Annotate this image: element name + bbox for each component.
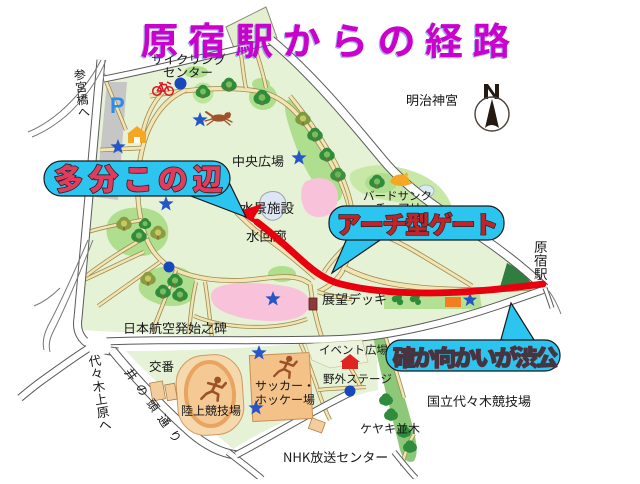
svg-text:P: P — [110, 93, 125, 118]
